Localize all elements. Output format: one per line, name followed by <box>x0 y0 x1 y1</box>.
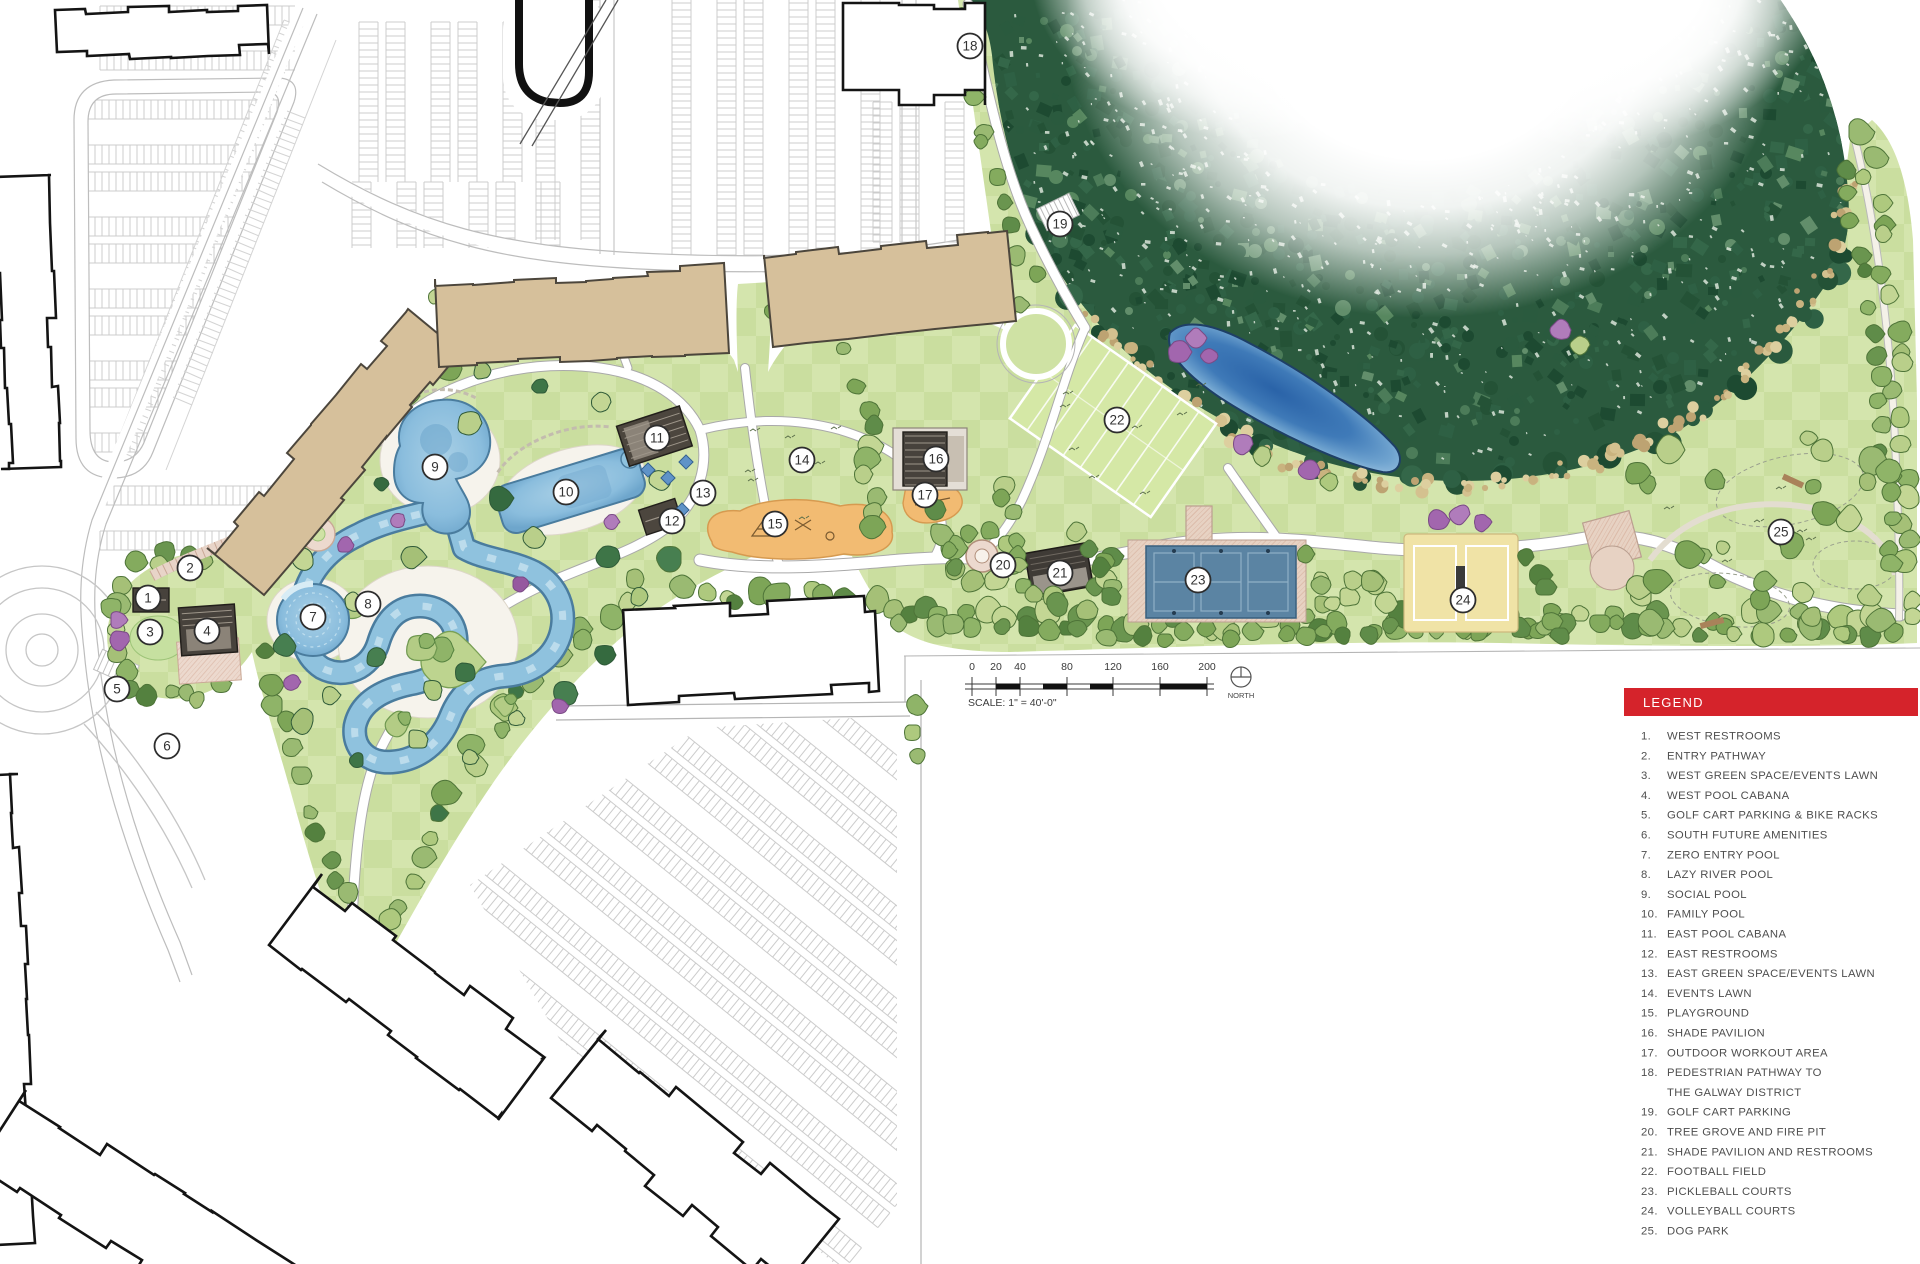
svg-text:1: 1 <box>144 591 152 606</box>
svg-text:EAST POOL CABANA: EAST POOL CABANA <box>1667 929 1786 941</box>
svg-text:DOG PARK: DOG PARK <box>1667 1226 1729 1238</box>
svg-text:14: 14 <box>794 453 810 468</box>
svg-text:21.: 21. <box>1641 1146 1658 1158</box>
svg-text:11.: 11. <box>1641 929 1657 941</box>
svg-text:SHADE PAVILION AND RESTROOMS: SHADE PAVILION AND RESTROOMS <box>1667 1146 1873 1158</box>
svg-text:SOCIAL POOL: SOCIAL POOL <box>1667 889 1747 901</box>
svg-text:5.: 5. <box>1641 810 1651 822</box>
svg-text:2.: 2. <box>1641 750 1651 762</box>
svg-text:17: 17 <box>917 488 932 503</box>
svg-text:20: 20 <box>990 661 1002 673</box>
svg-text:12.: 12. <box>1641 948 1658 960</box>
svg-text:PEDESTRIAN PATHWAY TO: PEDESTRIAN PATHWAY TO <box>1667 1067 1822 1079</box>
svg-text:9.: 9. <box>1641 889 1651 901</box>
svg-text:24: 24 <box>1455 593 1471 608</box>
svg-text:GOLF CART PARKING: GOLF CART PARKING <box>1667 1107 1791 1119</box>
svg-text:EVENTS LAWN: EVENTS LAWN <box>1667 988 1752 1000</box>
svg-text:WEST GREEN SPACE/EVENTS LAWN: WEST GREEN SPACE/EVENTS LAWN <box>1667 770 1878 782</box>
svg-text:OUTDOOR WORKOUT AREA: OUTDOOR WORKOUT AREA <box>1667 1047 1828 1059</box>
svg-text:ZERO ENTRY POOL: ZERO ENTRY POOL <box>1667 849 1780 861</box>
svg-text:12: 12 <box>664 514 679 529</box>
svg-text:ENTRY PATHWAY: ENTRY PATHWAY <box>1667 750 1766 762</box>
svg-text:3.: 3. <box>1641 770 1651 782</box>
svg-text:14.: 14. <box>1641 988 1658 1000</box>
svg-text:PLAYGROUND: PLAYGROUND <box>1667 1008 1749 1020</box>
svg-text:11: 11 <box>650 431 664 446</box>
svg-text:0: 0 <box>969 661 975 673</box>
svg-text:18.: 18. <box>1641 1067 1658 1079</box>
svg-text:FAMILY POOL: FAMILY POOL <box>1667 909 1745 921</box>
svg-text:TREE GROVE AND FIRE PIT: TREE GROVE AND FIRE PIT <box>1667 1127 1826 1139</box>
svg-text:PICKLEBALL COURTS: PICKLEBALL COURTS <box>1667 1186 1792 1198</box>
svg-text:2: 2 <box>186 561 194 576</box>
svg-text:21: 21 <box>1052 566 1067 581</box>
svg-text:17.: 17. <box>1641 1047 1658 1059</box>
svg-text:5: 5 <box>113 682 121 697</box>
svg-text:6.: 6. <box>1641 830 1651 842</box>
svg-text:25.: 25. <box>1641 1226 1658 1238</box>
svg-text:THE GALWAY DISTRICT: THE GALWAY DISTRICT <box>1667 1087 1802 1099</box>
svg-text:FOOTBALL FIELD: FOOTBALL FIELD <box>1667 1166 1766 1178</box>
svg-text:15: 15 <box>767 517 782 532</box>
svg-text:19: 19 <box>1052 217 1067 232</box>
svg-text:20.: 20. <box>1641 1127 1658 1139</box>
svg-text:EAST GREEN SPACE/EVENTS LAWN: EAST GREEN SPACE/EVENTS LAWN <box>1667 968 1875 980</box>
svg-text:16.: 16. <box>1641 1028 1658 1040</box>
svg-text:22.: 22. <box>1641 1166 1658 1178</box>
svg-text:NORTH: NORTH <box>1228 691 1255 700</box>
svg-text:23.: 23. <box>1641 1186 1658 1198</box>
svg-text:SHADE PAVILION: SHADE PAVILION <box>1667 1028 1765 1040</box>
svg-text:7: 7 <box>309 610 317 625</box>
svg-text:15.: 15. <box>1641 1008 1658 1020</box>
svg-text:LAZY RIVER POOL: LAZY RIVER POOL <box>1667 869 1773 881</box>
svg-text:200: 200 <box>1198 661 1216 673</box>
svg-text:22: 22 <box>1109 413 1124 428</box>
svg-text:7.: 7. <box>1641 849 1651 861</box>
svg-text:10: 10 <box>558 485 573 500</box>
svg-text:3: 3 <box>146 625 154 640</box>
svg-text:13: 13 <box>695 486 710 501</box>
svg-text:6: 6 <box>163 739 171 754</box>
svg-text:8.: 8. <box>1641 869 1651 881</box>
svg-text:WEST POOL CABANA: WEST POOL CABANA <box>1667 790 1790 802</box>
svg-text:LEGEND: LEGEND <box>1643 695 1704 710</box>
svg-text:19.: 19. <box>1641 1107 1658 1119</box>
svg-text:4: 4 <box>203 624 211 639</box>
svg-text:9: 9 <box>431 460 439 475</box>
svg-text:80: 80 <box>1061 661 1073 673</box>
svg-text:EAST RESTROOMS: EAST RESTROOMS <box>1667 948 1778 960</box>
svg-text:24.: 24. <box>1641 1206 1658 1218</box>
svg-text:GOLF CART PARKING & BIKE RACKS: GOLF CART PARKING & BIKE RACKS <box>1667 810 1878 822</box>
svg-text:40: 40 <box>1014 661 1026 673</box>
svg-text:SCALE: 1" = 40'-0": SCALE: 1" = 40'-0" <box>968 697 1057 709</box>
svg-text:VOLLEYBALL COURTS: VOLLEYBALL COURTS <box>1667 1206 1796 1218</box>
svg-text:18: 18 <box>962 39 977 54</box>
svg-text:20: 20 <box>995 558 1010 573</box>
svg-text:160: 160 <box>1151 661 1169 673</box>
svg-text:25: 25 <box>1773 525 1788 540</box>
svg-text:120: 120 <box>1104 661 1122 673</box>
svg-text:16: 16 <box>928 452 943 467</box>
svg-text:1.: 1. <box>1641 731 1651 743</box>
svg-text:4.: 4. <box>1641 790 1651 802</box>
svg-text:SOUTH FUTURE AMENITIES: SOUTH FUTURE AMENITIES <box>1667 830 1828 842</box>
svg-text:23: 23 <box>1190 573 1205 588</box>
svg-text:WEST RESTROOMS: WEST RESTROOMS <box>1667 731 1781 743</box>
svg-text:8: 8 <box>364 597 372 612</box>
svg-text:13.: 13. <box>1641 968 1658 980</box>
svg-text:10.: 10. <box>1641 909 1658 921</box>
